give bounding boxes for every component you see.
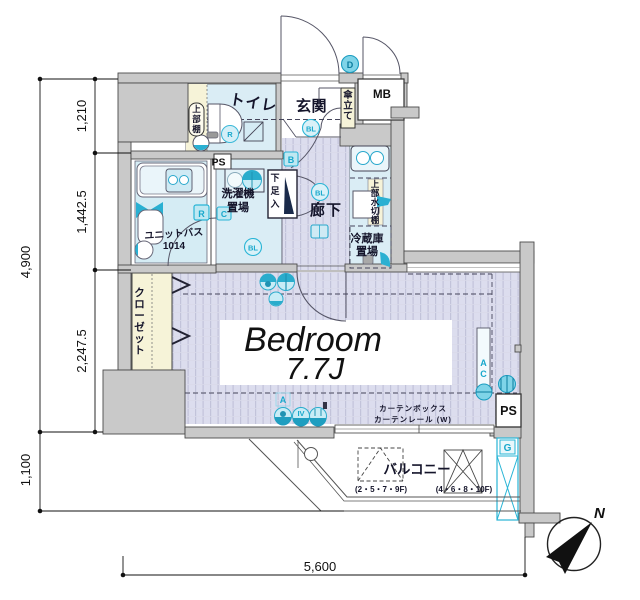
svg-text:1,210: 1,210 [74,100,89,133]
svg-text:BL: BL [248,244,258,253]
svg-text:5,600: 5,600 [304,559,337,574]
svg-text:上部水切棚: 上部水切棚 [370,179,380,225]
svg-text:7.7J: 7.7J [286,351,345,386]
svg-text:1014: 1014 [163,241,186,252]
svg-text:R: R [227,130,233,139]
svg-text:A: A [280,395,287,405]
svg-text:IV: IV [297,409,304,418]
svg-text:カーテンボックス: カーテンボックス [379,403,447,413]
svg-text:上部棚: 上部棚 [192,104,201,134]
svg-text:AC: AC [480,358,487,379]
svg-text:廊下: 廊下 [310,201,342,219]
svg-text:R: R [198,209,205,219]
svg-text:PS: PS [211,157,225,169]
svg-text:1,442.5: 1,442.5 [74,190,89,233]
svg-text:4,900: 4,900 [18,246,33,279]
svg-text:冷蔵庫: 冷蔵庫 [351,231,384,245]
svg-text:G: G [504,443,512,454]
svg-text:玄関: 玄関 [296,97,327,115]
svg-text:カーテンレール (W): カーテンレール (W) [374,415,452,424]
svg-text:BL: BL [315,189,325,198]
svg-text:PS: PS [500,404,517,418]
svg-text:D: D [347,60,354,70]
svg-text:B: B [288,155,295,165]
svg-text:置場: 置場 [227,200,249,214]
svg-text:BL: BL [306,125,316,134]
svg-text:クローゼット: クローゼット [134,287,145,357]
svg-text:傘立て: 傘立て [343,89,353,122]
svg-text:(4・6・8・10F): (4・6・8・10F) [436,485,493,494]
svg-text:バルコニー: バルコニー [383,462,450,477]
svg-text:洗濯機: 洗濯機 [222,186,255,200]
svg-text:(2・5・7・9F): (2・5・7・9F) [355,485,407,494]
svg-text:下足入: 下足入 [269,173,280,209]
svg-text:置場: 置場 [356,244,378,258]
svg-text:N: N [594,505,606,522]
svg-text:MB: MB [373,89,391,101]
svg-text:1,100: 1,100 [18,454,33,487]
svg-text:2,247.5: 2,247.5 [74,329,89,372]
